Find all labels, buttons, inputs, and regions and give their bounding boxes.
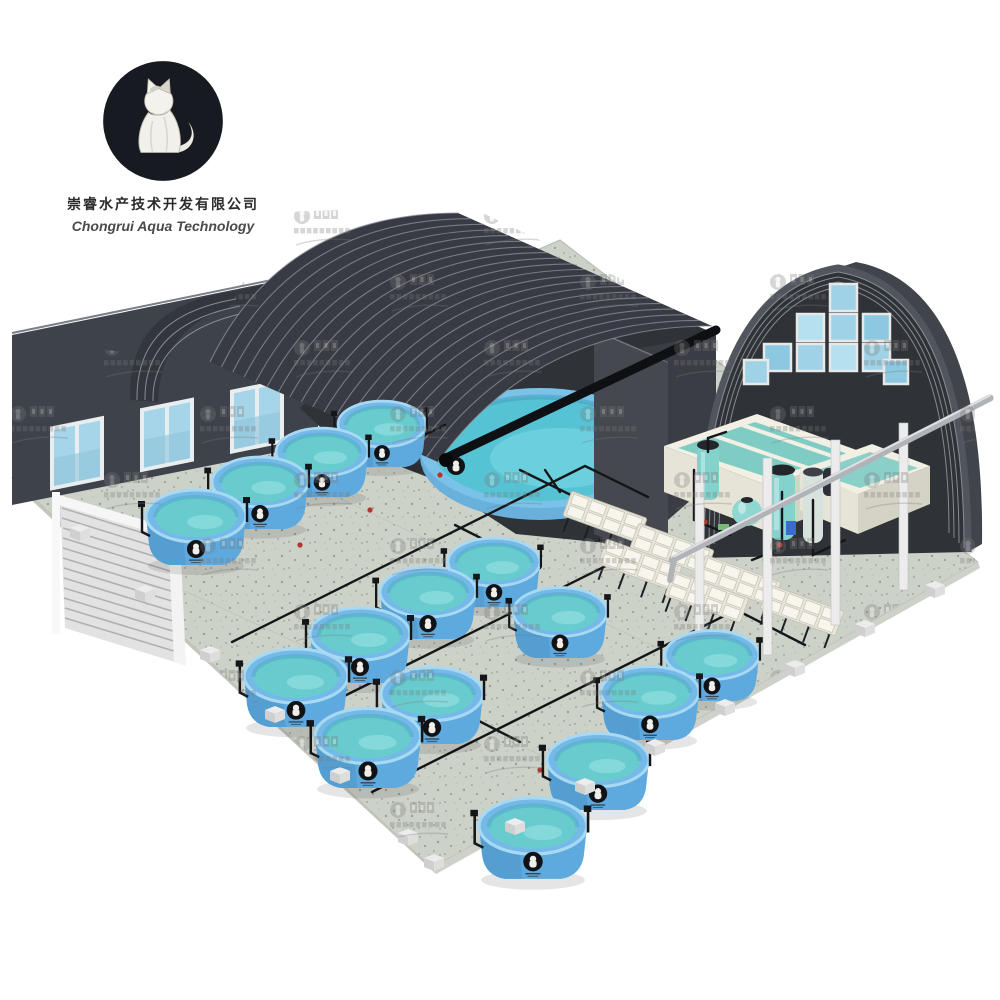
cat-logo-icon xyxy=(100,58,226,184)
company-name-cn: 崇睿水产技术开发有限公司 xyxy=(38,194,288,214)
company-name-en: Chongrui Aqua Technology xyxy=(38,218,288,234)
watermark-overlay xyxy=(0,190,1000,880)
company-logo: 崇睿水产技术开发有限公司 Chongrui Aqua Technology xyxy=(38,58,288,234)
product-image: 崇睿水产技术开发有限公司 Chongrui Aqua Technology xyxy=(0,0,1000,1000)
